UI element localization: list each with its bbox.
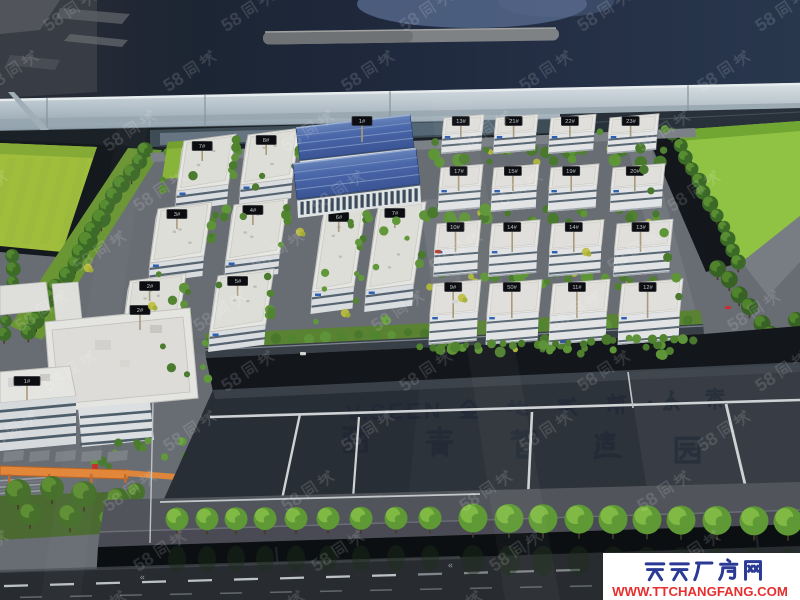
svg-text:WWW.TTCHANGFANG.COM: WWW.TTCHANGFANG.COM — [612, 584, 788, 599]
